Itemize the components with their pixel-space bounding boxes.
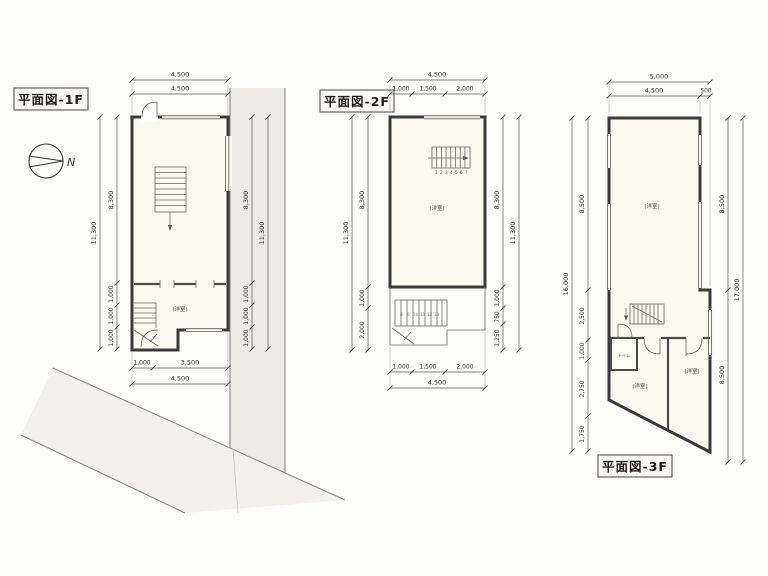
floor-plan-sheet: N 平面図-1F <box>0 0 768 576</box>
plan-2f-room-label: (洋室) <box>429 204 444 212</box>
dim-label: 8,300 <box>242 191 250 210</box>
dim-label: 16,000 <box>562 273 570 296</box>
stair-number: 1 <box>435 170 438 175</box>
plan-3f-toilet-label: トイレ <box>618 353 631 358</box>
dim-label: 1,250 <box>494 329 501 346</box>
floor-plan-3f: (洋室) (洋室) (洋室) トイレ 5,000 4,500 500 16,00… <box>562 73 746 465</box>
dim-label: 1,000 <box>133 360 150 367</box>
dim-label: 1,000 <box>108 307 115 324</box>
stair-number: 11 <box>420 312 426 317</box>
plan-3f-room-label-upper: (洋室) <box>644 202 659 210</box>
plan-3f-room-label-lower-right: (洋室) <box>684 367 699 375</box>
stair-number: 5 <box>455 170 458 175</box>
dim-label: 11,300 <box>509 222 517 245</box>
dim-label: 4,500 <box>171 85 190 93</box>
stair-number: 3 <box>445 170 448 175</box>
plan-1f-outline <box>132 117 228 350</box>
dim-label: 2,750 <box>579 380 586 397</box>
dim-label: 1,000 <box>494 289 501 306</box>
dim-label: 1,750 <box>579 425 586 442</box>
dim-label: 1,000 <box>392 86 409 93</box>
stair-number: 7 <box>465 170 468 175</box>
site-drawing: N 平面図-1F <box>0 0 768 576</box>
stair-number: 9 <box>407 312 410 317</box>
dim-label: 1,000 <box>108 329 115 346</box>
dim-label: 1,000 <box>359 289 366 306</box>
dim-label: 4,500 <box>171 375 190 383</box>
dim-label: 2,000 <box>359 321 366 338</box>
plan-2f-title-box: 平面図-2F <box>320 90 394 112</box>
dim-label: 8,300 <box>493 191 501 210</box>
stair-number: 8 <box>400 312 403 317</box>
dim-label: 1,000 <box>243 285 250 302</box>
dim-label: 8,500 <box>718 366 726 385</box>
dim-label: 4,500 <box>171 71 190 79</box>
dim-label: 4,500 <box>428 379 447 387</box>
road-band-vertical <box>230 88 285 473</box>
north-compass-icon: N <box>29 144 75 178</box>
dim-label: 8,300 <box>358 191 366 210</box>
plan-2f-title: 平面図-2F <box>324 94 390 109</box>
plan-3f-outline <box>609 118 710 452</box>
dim-label: 2,000 <box>456 86 473 93</box>
north-label: N <box>67 156 75 169</box>
dim-label: 8,500 <box>578 195 586 214</box>
plan-3f-title: 平面図-3F <box>602 459 668 474</box>
dim-label: 17,000 <box>733 279 741 302</box>
dim-label: 11,300 <box>342 222 350 245</box>
road-band-diagonal <box>21 368 345 513</box>
floor-plan-2f: 8 9 10 11 12 13 1 2 3 4 <box>342 71 522 391</box>
dim-label: 5,000 <box>650 73 669 81</box>
dim-label: 1,000 <box>579 342 586 359</box>
plan-2f-outline <box>390 117 485 287</box>
dim-label: 11,300 <box>90 222 98 245</box>
plan-3f-title-box: 平面図-3F <box>598 455 672 477</box>
dim-label: 11,300 <box>258 222 266 245</box>
stair-number: 4 <box>450 170 453 175</box>
dim-label: 2,500 <box>579 307 586 324</box>
dim-label: 1,000 <box>243 307 250 324</box>
stair-number: 13 <box>434 312 440 317</box>
dim-label: 750 <box>494 311 501 323</box>
plan-3f-room-label-lower-left: (洋室) <box>632 382 647 390</box>
stair-number: 12 <box>427 312 433 317</box>
stair-number: 6 <box>460 170 463 175</box>
dim-label: 1,000 <box>243 329 250 346</box>
dim-label: 4,500 <box>428 71 447 79</box>
dim-label: 3,500 <box>181 359 200 367</box>
dim-label: 8,500 <box>718 195 726 214</box>
dim-label: 2,000 <box>456 364 473 371</box>
dim-label: 8,300 <box>107 191 115 210</box>
dim-label: 1,000 <box>108 285 115 302</box>
dim-label: 500 <box>700 88 712 95</box>
dim-label: 1,500 <box>419 364 436 371</box>
dim-label: 1,000 <box>392 364 409 371</box>
stair-number: 2 <box>440 170 443 175</box>
dim-label: 1,500 <box>419 86 436 93</box>
plan-1f-title: 平面図-1F <box>18 92 84 107</box>
plan-1f-entrance-door <box>141 102 158 122</box>
plan-2f-external-stair-area: 8 9 10 11 12 13 <box>390 287 485 345</box>
plan-1f-room-label: (洋室) <box>172 305 187 313</box>
dim-label: 4,500 <box>645 87 664 95</box>
stair-number: 10 <box>413 312 419 317</box>
plan-2f-windows <box>424 114 480 121</box>
plan-1f-title-box: 平面図-1F <box>14 88 88 110</box>
